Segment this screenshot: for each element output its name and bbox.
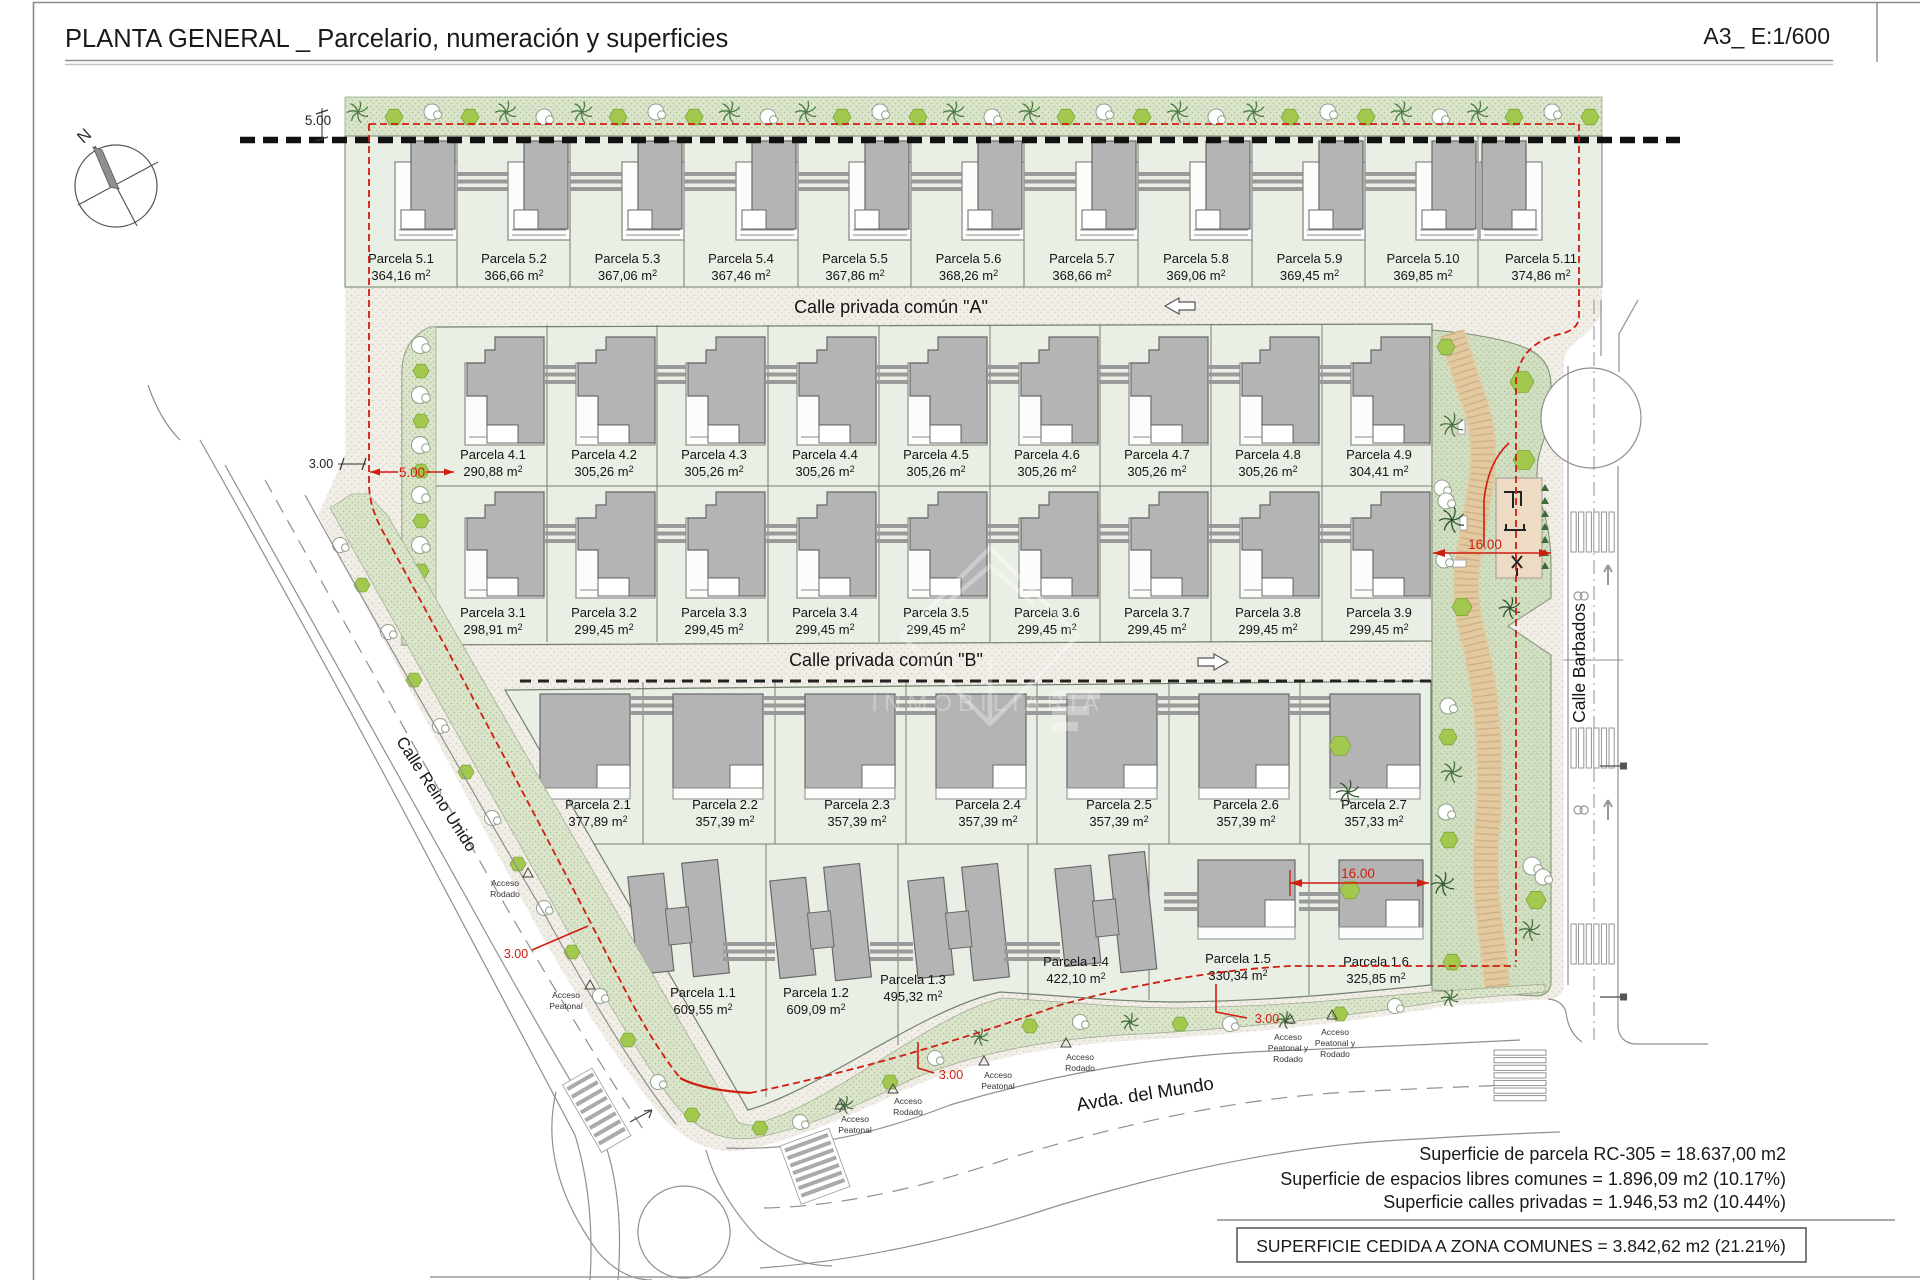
svg-text:Parcela 3.4: Parcela 3.4 — [792, 605, 858, 620]
svg-text:422,10 m2: 422,10 m2 — [1046, 971, 1105, 986]
svg-text:299,45 m2: 299,45 m2 — [574, 622, 633, 637]
svg-text:369,85 m2: 369,85 m2 — [1393, 268, 1452, 283]
svg-text:Rodado: Rodado — [1273, 1054, 1303, 1064]
svg-text:Parcela 2.5: Parcela 2.5 — [1086, 797, 1152, 812]
svg-text:299,45 m2: 299,45 m2 — [1127, 622, 1186, 637]
svg-text:SUPERFICIE CEDIDA A ZONA COMUN: SUPERFICIE CEDIDA A ZONA COMUNES = 3.842… — [1256, 1236, 1786, 1256]
svg-text:Rodado: Rodado — [1320, 1049, 1350, 1059]
svg-text:357,39 m2: 357,39 m2 — [695, 814, 754, 829]
svg-text:Rodado: Rodado — [1065, 1063, 1095, 1073]
svg-text:305,26 m2: 305,26 m2 — [574, 464, 633, 479]
svg-text:Rodado: Rodado — [893, 1107, 923, 1117]
svg-text:305,26 m2: 305,26 m2 — [795, 464, 854, 479]
svg-text:Parcela 4.1: Parcela 4.1 — [460, 447, 526, 462]
svg-text:Acceso: Acceso — [491, 878, 519, 888]
svg-text:367,46 m2: 367,46 m2 — [711, 268, 770, 283]
svg-text:299,45 m2: 299,45 m2 — [684, 622, 743, 637]
svg-text:299,45 m2: 299,45 m2 — [1349, 622, 1408, 637]
svg-text:305,26 m2: 305,26 m2 — [1127, 464, 1186, 479]
svg-text:Parcela 1.1: Parcela 1.1 — [670, 985, 736, 1000]
svg-text:357,33 m2: 357,33 m2 — [1344, 814, 1403, 829]
svg-text:Calle privada común "B": Calle privada común "B" — [789, 650, 983, 670]
svg-text:367,06 m2: 367,06 m2 — [598, 268, 657, 283]
svg-text:Parcela 4.8: Parcela 4.8 — [1235, 447, 1301, 462]
svg-text:Parcela 2.6: Parcela 2.6 — [1213, 797, 1279, 812]
svg-text:305,26 m2: 305,26 m2 — [906, 464, 965, 479]
svg-text:Parcela 3.1: Parcela 3.1 — [460, 605, 526, 620]
svg-text:298,91 m2: 298,91 m2 — [463, 622, 522, 637]
svg-text:Parcela 5.8: Parcela 5.8 — [1163, 251, 1229, 266]
svg-text:Acceso: Acceso — [841, 1114, 869, 1124]
svg-text:Parcela 5.3: Parcela 5.3 — [595, 251, 661, 266]
svg-text:Parcela 5.10: Parcela 5.10 — [1387, 251, 1460, 266]
svg-text:3.00: 3.00 — [504, 947, 528, 961]
svg-text:368,66 m2: 368,66 m2 — [1052, 268, 1111, 283]
svg-text:Calle Barbados: Calle Barbados — [1569, 603, 1589, 723]
svg-text:Parcela 5.7: Parcela 5.7 — [1049, 251, 1115, 266]
svg-text:Parcela 4.2: Parcela 4.2 — [571, 447, 637, 462]
svg-text:325,85 m2: 325,85 m2 — [1346, 971, 1405, 986]
svg-text:609,09 m2: 609,09 m2 — [786, 1002, 845, 1017]
svg-text:Calle privada común "A": Calle privada común "A" — [794, 297, 988, 317]
svg-text:Parcela 2.7: Parcela 2.7 — [1341, 797, 1407, 812]
svg-text:Parcela 5.11: Parcela 5.11 — [1505, 251, 1577, 266]
svg-text:Parcela 3.3: Parcela 3.3 — [681, 605, 747, 620]
svg-text:299,45 m2: 299,45 m2 — [795, 622, 854, 637]
svg-text:16.00: 16.00 — [1468, 537, 1502, 552]
svg-text:Peatonal y: Peatonal y — [1268, 1043, 1309, 1053]
svg-text:364,16 m2: 364,16 m2 — [371, 268, 430, 283]
svg-text:Peatonal: Peatonal — [549, 1001, 583, 1011]
svg-text:368,26 m2: 368,26 m2 — [939, 268, 998, 283]
svg-text:Acceso: Acceso — [1274, 1032, 1302, 1042]
svg-text:305,26 m2: 305,26 m2 — [1017, 464, 1076, 479]
svg-text:Parcela 4.3: Parcela 4.3 — [681, 447, 747, 462]
svg-text:Parcela 5.1: Parcela 5.1 — [368, 251, 434, 266]
svg-text:290,88 m2: 290,88 m2 — [463, 464, 522, 479]
svg-text:Peatonal y: Peatonal y — [1315, 1038, 1356, 1048]
svg-text:330,34 m2: 330,34 m2 — [1208, 968, 1267, 983]
svg-text:INMOBILIARIA: INMOBILIARIA — [871, 690, 1104, 717]
svg-text:Parcela 1.5: Parcela 1.5 — [1205, 951, 1271, 966]
svg-text:Peatonal: Peatonal — [981, 1081, 1015, 1091]
svg-text:Parcela 4.5: Parcela 4.5 — [903, 447, 969, 462]
svg-text:Parcela 1.4: Parcela 1.4 — [1043, 954, 1109, 969]
svg-text:Parcela 5.4: Parcela 5.4 — [708, 251, 774, 266]
svg-text:Parcela 2.4: Parcela 2.4 — [955, 797, 1021, 812]
svg-text:5.00: 5.00 — [399, 465, 425, 480]
svg-text:Rodado: Rodado — [490, 889, 520, 899]
svg-text:Parcela 4.9: Parcela 4.9 — [1346, 447, 1412, 462]
svg-text:3.00: 3.00 — [1255, 1012, 1279, 1026]
svg-text:Parcela 3.5: Parcela 3.5 — [903, 605, 969, 620]
svg-text:16.00: 16.00 — [1341, 866, 1375, 881]
svg-text:Peatonal: Peatonal — [838, 1125, 872, 1135]
svg-text:Parcela 4.4: Parcela 4.4 — [792, 447, 858, 462]
svg-text:377,89 m2: 377,89 m2 — [568, 814, 627, 829]
svg-text:Parcela 3.9: Parcela 3.9 — [1346, 605, 1412, 620]
svg-text:357,39 m2: 357,39 m2 — [1089, 814, 1148, 829]
svg-text:Acceso: Acceso — [552, 990, 580, 1000]
svg-text:Acceso: Acceso — [894, 1096, 922, 1106]
svg-text:357,39 m2: 357,39 m2 — [827, 814, 886, 829]
svg-text:Parcela 5.5: Parcela 5.5 — [822, 251, 888, 266]
svg-text:3.00: 3.00 — [309, 457, 333, 471]
svg-text:609,55 m2: 609,55 m2 — [673, 1002, 732, 1017]
svg-text:Parcela 5.2: Parcela 5.2 — [481, 251, 547, 266]
svg-text:Parcela 3.8: Parcela 3.8 — [1235, 605, 1301, 620]
svg-text:Parcela 5.6: Parcela 5.6 — [936, 251, 1002, 266]
svg-text:495,32 m2: 495,32 m2 — [883, 989, 942, 1004]
svg-text:Parcela 5.9: Parcela 5.9 — [1277, 251, 1343, 266]
svg-text:Acceso: Acceso — [1321, 1027, 1349, 1037]
svg-text:305,26 m2: 305,26 m2 — [684, 464, 743, 479]
svg-text:Parcela 1.2: Parcela 1.2 — [783, 985, 849, 1000]
svg-text:374,86 m2: 374,86 m2 — [1511, 268, 1570, 283]
svg-text:Parcela 3.2: Parcela 3.2 — [571, 605, 637, 620]
svg-text:299,45 m2: 299,45 m2 — [1238, 622, 1297, 637]
svg-text:304,41 m2: 304,41 m2 — [1349, 464, 1408, 479]
svg-text:Superficie de espacios libres: Superficie de espacios libres comunes = … — [1280, 1169, 1786, 1189]
svg-text:366,66 m2: 366,66 m2 — [484, 268, 543, 283]
svg-text:305,26 m2: 305,26 m2 — [1238, 464, 1297, 479]
svg-text:Parcela 1.3: Parcela 1.3 — [880, 972, 946, 987]
svg-text:Parcela 4.6: Parcela 4.6 — [1014, 447, 1080, 462]
svg-text:Acceso: Acceso — [1066, 1052, 1094, 1062]
svg-text:357,39 m2: 357,39 m2 — [1216, 814, 1275, 829]
svg-text:5.00: 5.00 — [305, 113, 331, 128]
svg-text:3.00: 3.00 — [939, 1068, 963, 1082]
svg-text:Acceso: Acceso — [984, 1070, 1012, 1080]
svg-text:Superficie calles privadas = 1: Superficie calles privadas = 1.946,53 m2… — [1383, 1192, 1786, 1212]
svg-text:Parcela 2.3: Parcela 2.3 — [824, 797, 890, 812]
svg-text:357,39 m2: 357,39 m2 — [958, 814, 1017, 829]
svg-text:Parcela 4.7: Parcela 4.7 — [1124, 447, 1190, 462]
svg-text:367,86 m2: 367,86 m2 — [825, 268, 884, 283]
svg-text:Superficie de parcela RC-305 =: Superficie de parcela RC-305 = 18.637,00… — [1419, 1144, 1786, 1164]
svg-text:PLANTA GENERAL _ Parcelario, n: PLANTA GENERAL _ Parcelario, numeración … — [65, 25, 728, 53]
svg-text:Parcela 2.1: Parcela 2.1 — [565, 797, 631, 812]
svg-text:369,45 m2: 369,45 m2 — [1280, 268, 1339, 283]
svg-text:Parcela 3.7: Parcela 3.7 — [1124, 605, 1190, 620]
svg-text:369,06 m2: 369,06 m2 — [1166, 268, 1225, 283]
svg-text:Parcela 2.2: Parcela 2.2 — [692, 797, 758, 812]
svg-text:A3_ E:1/600: A3_ E:1/600 — [1703, 23, 1830, 49]
